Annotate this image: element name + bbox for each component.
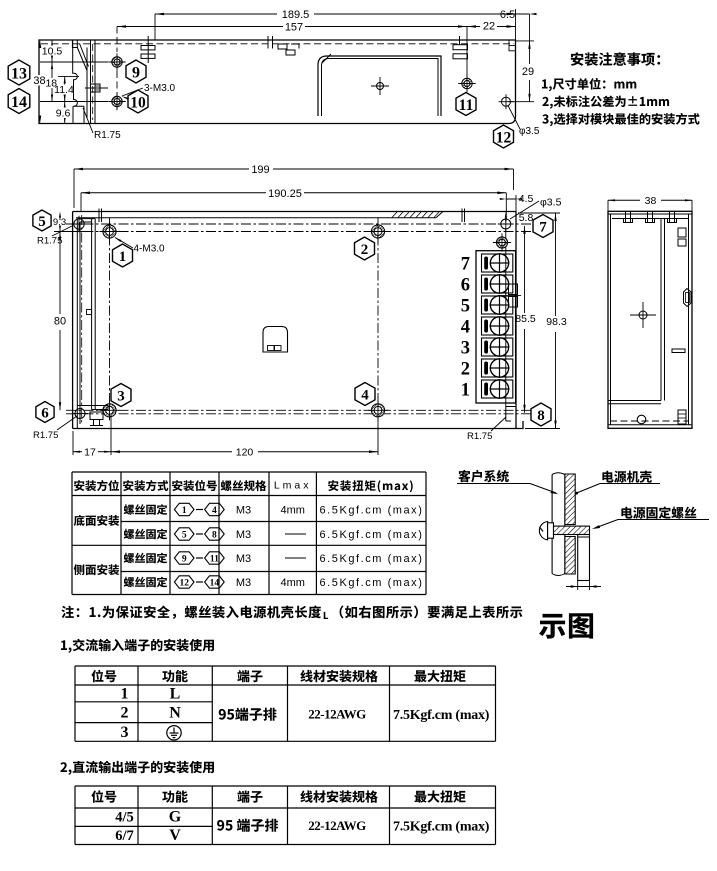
- svg-text:12: 12: [179, 578, 189, 588]
- svg-text:6.5Kgf.cm (max): 6.5Kgf.cm (max): [320, 577, 424, 589]
- svg-text:4: 4: [212, 506, 217, 516]
- svg-text:R1.75: R1.75: [467, 431, 492, 442]
- svg-text:3: 3: [121, 724, 129, 741]
- svg-text:190.25: 190.25: [268, 188, 302, 200]
- svg-text:9.6: 9.6: [56, 108, 71, 120]
- svg-text:4.5: 4.5: [519, 193, 534, 205]
- svg-text:R1.75: R1.75: [33, 430, 58, 441]
- svg-text:10.5: 10.5: [42, 46, 63, 58]
- svg-text:M3: M3: [236, 553, 251, 565]
- svg-text:1: 1: [119, 249, 127, 265]
- svg-text:3: 3: [117, 389, 125, 405]
- svg-text:11: 11: [459, 97, 474, 114]
- svg-text:1: 1: [121, 686, 129, 703]
- svg-text:M3: M3: [236, 529, 251, 541]
- svg-text:80: 80: [54, 316, 66, 328]
- svg-text:6/7: 6/7: [115, 828, 134, 844]
- svg-text:1: 1: [182, 506, 187, 516]
- svg-text:3: 3: [461, 338, 470, 358]
- svg-text:1: 1: [461, 380, 470, 400]
- svg-text:22-12AWG: 22-12AWG: [308, 818, 366, 833]
- svg-text:φ3.5: φ3.5: [519, 126, 540, 137]
- svg-text:199: 199: [251, 164, 269, 176]
- svg-text:29: 29: [522, 66, 534, 78]
- svg-text:17: 17: [84, 447, 96, 459]
- svg-text:2: 2: [461, 359, 470, 379]
- svg-text:11: 11: [210, 554, 219, 564]
- svg-text:Lmax: Lmax: [274, 480, 312, 492]
- svg-text:6.5: 6.5: [500, 9, 515, 21]
- svg-text:8: 8: [212, 530, 217, 540]
- svg-text:85.5: 85.5: [515, 313, 536, 325]
- svg-text:7: 7: [461, 254, 470, 274]
- svg-text:L: L: [170, 686, 181, 703]
- svg-text:38: 38: [645, 195, 657, 207]
- svg-text:6.5Kgf.cm (max): 6.5Kgf.cm (max): [320, 529, 424, 541]
- svg-text:7: 7: [539, 220, 547, 236]
- svg-text:6: 6: [41, 406, 49, 422]
- svg-text:22: 22: [483, 21, 495, 33]
- svg-text:120: 120: [236, 447, 254, 459]
- svg-text:4/5: 4/5: [115, 810, 134, 826]
- svg-text:R1.75: R1.75: [37, 236, 62, 247]
- svg-text:189.5: 189.5: [282, 9, 310, 21]
- svg-text:13: 13: [11, 66, 27, 83]
- svg-text:5: 5: [38, 214, 46, 230]
- svg-text:6: 6: [461, 275, 470, 295]
- svg-text:11.4: 11.4: [54, 84, 74, 96]
- svg-text:6.5Kgf.cm (max): 6.5Kgf.cm (max): [320, 505, 424, 517]
- svg-text:G: G: [169, 809, 182, 826]
- svg-text:9: 9: [132, 65, 140, 82]
- svg-text:M3: M3: [236, 577, 251, 589]
- svg-text:7.5Kgf.cm (max): 7.5Kgf.cm (max): [393, 708, 490, 723]
- svg-text:98.3: 98.3: [546, 316, 567, 328]
- svg-text:4: 4: [361, 388, 369, 404]
- svg-text:3-M3.0: 3-M3.0: [144, 83, 176, 94]
- svg-text:R1.75: R1.75: [94, 130, 121, 141]
- svg-text:14: 14: [210, 578, 220, 588]
- svg-text:5: 5: [182, 530, 187, 540]
- svg-text:7.5Kgf.cm (max): 7.5Kgf.cm (max): [393, 820, 490, 835]
- svg-text:9: 9: [182, 554, 187, 564]
- svg-text:4mm: 4mm: [280, 505, 304, 517]
- svg-text:6.5Kgf.cm (max): 6.5Kgf.cm (max): [320, 553, 424, 565]
- svg-text:12: 12: [496, 130, 512, 147]
- svg-text:2: 2: [361, 242, 369, 258]
- svg-text:M3: M3: [236, 505, 251, 517]
- svg-text:38: 38: [33, 75, 45, 87]
- svg-text:5.8: 5.8: [519, 212, 534, 224]
- svg-text:4mm: 4mm: [280, 577, 304, 589]
- svg-text:V: V: [169, 827, 181, 844]
- svg-text:2: 2: [121, 705, 129, 722]
- svg-text:157: 157: [285, 22, 303, 34]
- svg-text:10: 10: [130, 95, 146, 112]
- svg-text:22-12AWG: 22-12AWG: [308, 707, 366, 722]
- svg-text:14: 14: [11, 94, 27, 111]
- svg-text:φ3.5: φ3.5: [540, 197, 562, 209]
- svg-text:4-M3.0: 4-M3.0: [134, 244, 166, 255]
- svg-text:8: 8: [537, 408, 545, 424]
- svg-text:N: N: [169, 705, 181, 722]
- svg-text:4: 4: [461, 317, 470, 337]
- svg-text:5: 5: [461, 296, 470, 316]
